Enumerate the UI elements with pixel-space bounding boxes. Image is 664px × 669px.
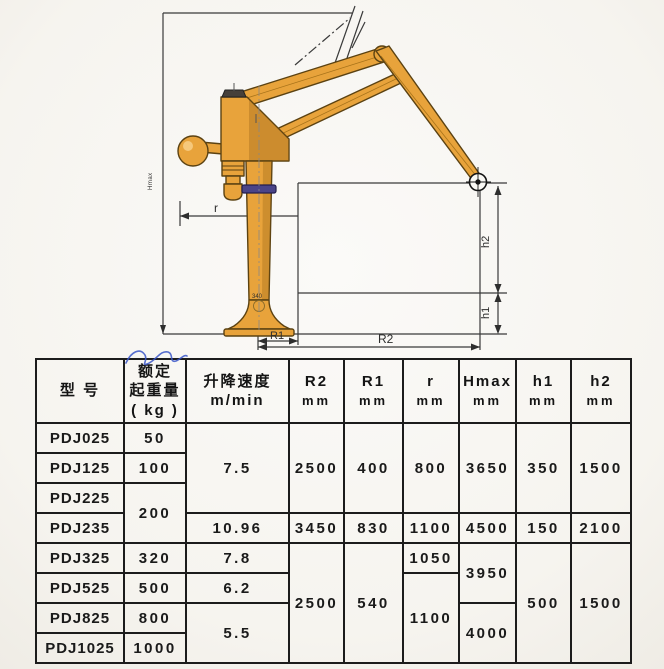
column <box>246 161 272 300</box>
value-cell: 320 <box>124 543 186 573</box>
value-cell: 1100 <box>403 513 459 543</box>
col-header-h2: h2mm <box>571 359 631 423</box>
col-header-r1: R1mm <box>344 359 403 423</box>
model-cell: PDJ825 <box>36 603 124 633</box>
col-header-text: mm <box>404 391 458 411</box>
spec-table-header: 型 号额定起重量( kg )升降速度m/minR2mmR1mmrmmHmaxmm… <box>36 359 631 423</box>
value-cell: 400 <box>344 423 403 513</box>
value-cell: 2100 <box>571 513 631 543</box>
catalog-page: 型 号额定起重量( kg )升降速度m/minR2mmR1mmrmmHmaxmm… <box>0 0 664 669</box>
value-cell: 1500 <box>571 543 631 663</box>
hook-point-icon <box>466 167 491 197</box>
model-cell: PDJ225 <box>36 483 124 513</box>
model-cell: PDJ325 <box>36 543 124 573</box>
col-header-hmax: Hmaxmm <box>459 359 516 423</box>
counterweight-ball <box>178 136 208 166</box>
spec-table: 型 号额定起重量( kg )升降速度m/minR2mmR1mmrmmHmaxmm… <box>35 358 632 664</box>
col-header-text: 起重量 <box>125 381 185 401</box>
col-header-text: 额定 <box>125 362 185 382</box>
col-header-speed: 升降速度m/min <box>186 359 289 423</box>
col-header-text: r <box>404 372 458 392</box>
col-header-r: rmm <box>403 359 459 423</box>
col-header-text: m/min <box>187 391 288 411</box>
hatch-line <box>352 22 365 48</box>
col-header-text: h2 <box>572 372 630 392</box>
value-cell: 800 <box>124 603 186 633</box>
dim-label-r1: R1 <box>270 330 284 342</box>
value-cell: 100 <box>124 453 186 483</box>
value-cell: 10.96 <box>186 513 289 543</box>
base-plate <box>224 329 294 336</box>
col-header-text: R2 <box>290 372 343 392</box>
col-header-text: mm <box>290 391 343 411</box>
model-cell: PDJ125 <box>36 453 124 483</box>
col-header-text: 型 号 <box>37 381 123 401</box>
model-cell: PDJ1025 <box>36 633 124 663</box>
value-cell: 350 <box>516 423 571 513</box>
dim-label-h2: h2 <box>480 236 492 248</box>
value-cell: 1100 <box>403 573 459 663</box>
value-cell: 830 <box>344 513 403 543</box>
spec-table-body: PDJ025507.5250040080036503501500PDJ12510… <box>36 423 631 663</box>
dim-label-r2: R2 <box>378 332 394 346</box>
dimension-lines <box>163 6 507 350</box>
balance-arm <box>200 142 246 156</box>
col-header-text: mm <box>517 391 570 411</box>
value-cell: 6.2 <box>186 573 289 603</box>
col-header-text: mm <box>460 391 515 411</box>
crane-illustration <box>178 46 481 336</box>
value-cell: 7.5 <box>186 423 289 513</box>
value-cell: 3450 <box>289 513 344 543</box>
value-cell: 150 <box>516 513 571 543</box>
col-header-text: 升降速度 <box>187 372 288 392</box>
crane-head <box>221 97 289 161</box>
value-cell: 2500 <box>289 543 344 663</box>
dim-label-hmax: Hmax <box>148 172 154 190</box>
value-cell: 500 <box>124 573 186 603</box>
hatch-line <box>345 11 363 64</box>
value-cell: 2500 <box>289 423 344 513</box>
model-cell: PDJ025 <box>36 423 124 453</box>
head-cap <box>222 90 246 97</box>
col-header-h1: h1mm <box>516 359 571 423</box>
col-header-r2: R2mm <box>289 359 344 423</box>
col-header-text: h1 <box>517 372 570 392</box>
dim-label-r: r <box>214 201 218 215</box>
value-cell: 4000 <box>459 603 516 663</box>
col-header-model: 型 号 <box>36 359 124 423</box>
lower-link-arm <box>268 73 401 144</box>
value-cell: 5.5 <box>186 603 289 663</box>
value-cell: 7.8 <box>186 543 289 573</box>
dim-label-h1: h1 <box>480 307 492 319</box>
value-cell: 4500 <box>459 513 516 543</box>
dimension-arrows <box>160 186 502 351</box>
value-cell: 3950 <box>459 543 516 603</box>
value-cell: 540 <box>344 543 403 663</box>
forearm <box>376 46 481 181</box>
value-cell: 1050 <box>403 543 459 573</box>
col-header-text: ( kg ) <box>125 401 185 421</box>
header-row: 型 号额定起重量( kg )升降速度m/minR2mmR1mmrmmHmaxmm… <box>36 359 631 423</box>
upper-arm <box>228 49 384 110</box>
model-cell: PDJ525 <box>36 573 124 603</box>
value-cell: 1000 <box>124 633 186 663</box>
axis-centerline <box>295 18 350 65</box>
col-header-text: R1 <box>345 372 402 392</box>
collar-band <box>242 185 276 193</box>
model-cell: PDJ235 <box>36 513 124 543</box>
col-header-text: mm <box>572 391 630 411</box>
value-cell: 1500 <box>571 423 631 513</box>
base-mark-label: 340 <box>252 294 263 300</box>
dimension-labels: r R1 R2 h2 h1 Hmax 340 <box>148 172 492 346</box>
cylinder-cap <box>224 184 242 200</box>
value-cell: 200 <box>124 483 186 543</box>
col-header-text: mm <box>345 391 402 411</box>
hoist-cylinder <box>222 161 244 176</box>
arm-pivot-cap <box>374 46 390 62</box>
hatch-line <box>335 6 355 63</box>
table-row: PDJ3253207.82500540105039505001500 <box>36 543 631 573</box>
table-row: PDJ025507.5250040080036503501500 <box>36 423 631 453</box>
spec-table-wrap: 型 号额定起重量( kg )升降速度m/minR2mmR1mmrmmHmaxmm… <box>35 358 632 664</box>
value-cell: 3650 <box>459 423 516 513</box>
col-header-load: 额定起重量( kg ) <box>124 359 186 423</box>
value-cell: 500 <box>516 543 571 663</box>
value-cell: 50 <box>124 423 186 453</box>
col-header-text: Hmax <box>460 372 515 392</box>
value-cell: 800 <box>403 423 459 513</box>
bell-base <box>228 300 290 329</box>
